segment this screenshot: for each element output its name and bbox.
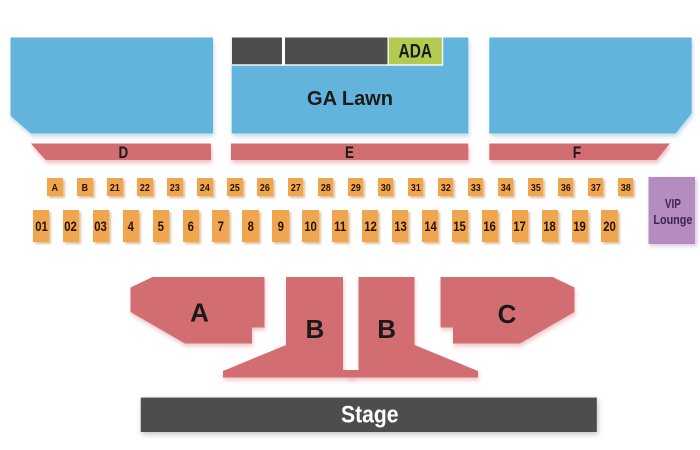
svg-text:Stage: Stage [341,401,399,428]
svg-text:ADA: ADA [399,42,433,63]
svg-text:D: D [118,144,128,162]
svg-text:C: C [498,299,517,329]
svg-text:B: B [306,314,325,344]
svg-text:GA Lawn: GA Lawn [307,88,393,110]
svg-text:E: E [345,144,354,162]
svg-text:A: A [190,297,209,327]
svg-text:VIP: VIP [665,197,681,211]
svg-text:F: F [573,144,581,162]
svg-text:Lounge: Lounge [653,213,692,227]
svg-text:B: B [377,314,396,344]
